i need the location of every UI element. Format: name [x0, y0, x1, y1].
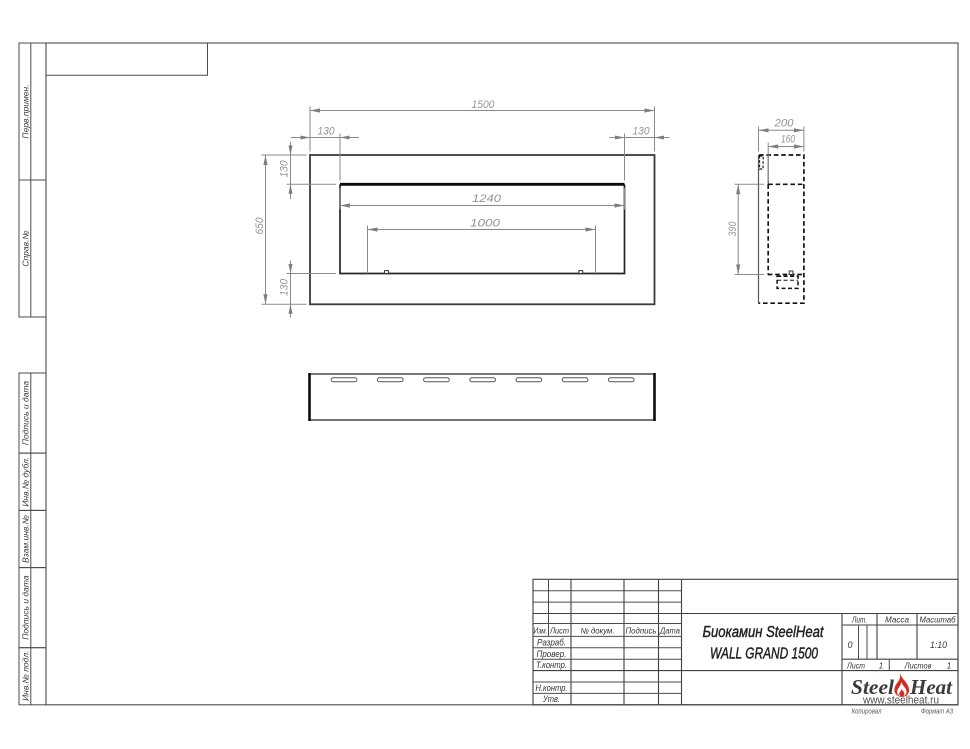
svg-text:160: 160 [781, 134, 796, 146]
svg-text:130: 130 [279, 160, 291, 178]
svg-text:Инв.№ дубл.: Инв.№ дубл. [21, 457, 31, 507]
svg-text:Изм.: Изм. [534, 627, 548, 636]
svg-text:Масса: Масса [885, 616, 910, 625]
svg-text:Формат А3: Формат А3 [921, 707, 954, 716]
svg-text:Провер.: Провер. [537, 649, 567, 659]
svg-text:130: 130 [633, 126, 651, 138]
svg-text:WALL GRAND 1500: WALL GRAND 1500 [710, 646, 818, 663]
svg-text:1500: 1500 [472, 99, 496, 111]
svg-text:130: 130 [318, 126, 336, 138]
svg-text:Подпись: Подпись [626, 627, 657, 636]
svg-text:Копировал: Копировал [852, 707, 883, 716]
svg-text:Масштаб: Масштаб [920, 616, 956, 625]
svg-text:www.steelheat.ru: www.steelheat.ru [862, 695, 939, 707]
svg-text:Лит.: Лит. [851, 616, 867, 625]
svg-text:Утв.: Утв. [542, 694, 560, 704]
svg-text:650: 650 [254, 217, 266, 235]
svg-text:1:10: 1:10 [930, 640, 947, 650]
svg-text:Биокамин SteelHeat: Биокамин SteelHeat [703, 624, 824, 641]
svg-text:1: 1 [879, 661, 883, 670]
svg-text:Листов: Листов [904, 661, 932, 670]
svg-text:Н.контр.: Н.контр. [536, 683, 568, 693]
svg-text:Подпись и дата: Подпись и дата [21, 575, 31, 640]
svg-text:1240: 1240 [472, 193, 502, 205]
svg-text:№ докум.: № докум. [581, 627, 615, 636]
svg-text:200: 200 [773, 118, 794, 130]
svg-text:390: 390 [727, 221, 739, 237]
svg-text:Дата: Дата [659, 627, 680, 636]
svg-text:Справ.№: Справ.№ [21, 230, 31, 266]
svg-text:Т.контр.: Т.контр. [536, 660, 567, 670]
svg-text:130: 130 [279, 278, 291, 296]
svg-text:Лист: Лист [549, 627, 569, 636]
svg-text:Разраб.: Разраб. [537, 637, 566, 647]
svg-text:1: 1 [947, 661, 951, 670]
svg-text:Инв.№ подл.: Инв.№ подл. [21, 651, 31, 701]
svg-text:0: 0 [847, 640, 852, 650]
svg-text:1000: 1000 [470, 218, 501, 230]
svg-text:Лист: Лист [846, 661, 865, 670]
svg-text:Взам.инв.№: Взам.инв.№ [21, 515, 31, 563]
svg-text:Перв.примен.: Перв.примен. [21, 84, 31, 138]
svg-text:Подпись и дата: Подпись и дата [21, 381, 31, 446]
